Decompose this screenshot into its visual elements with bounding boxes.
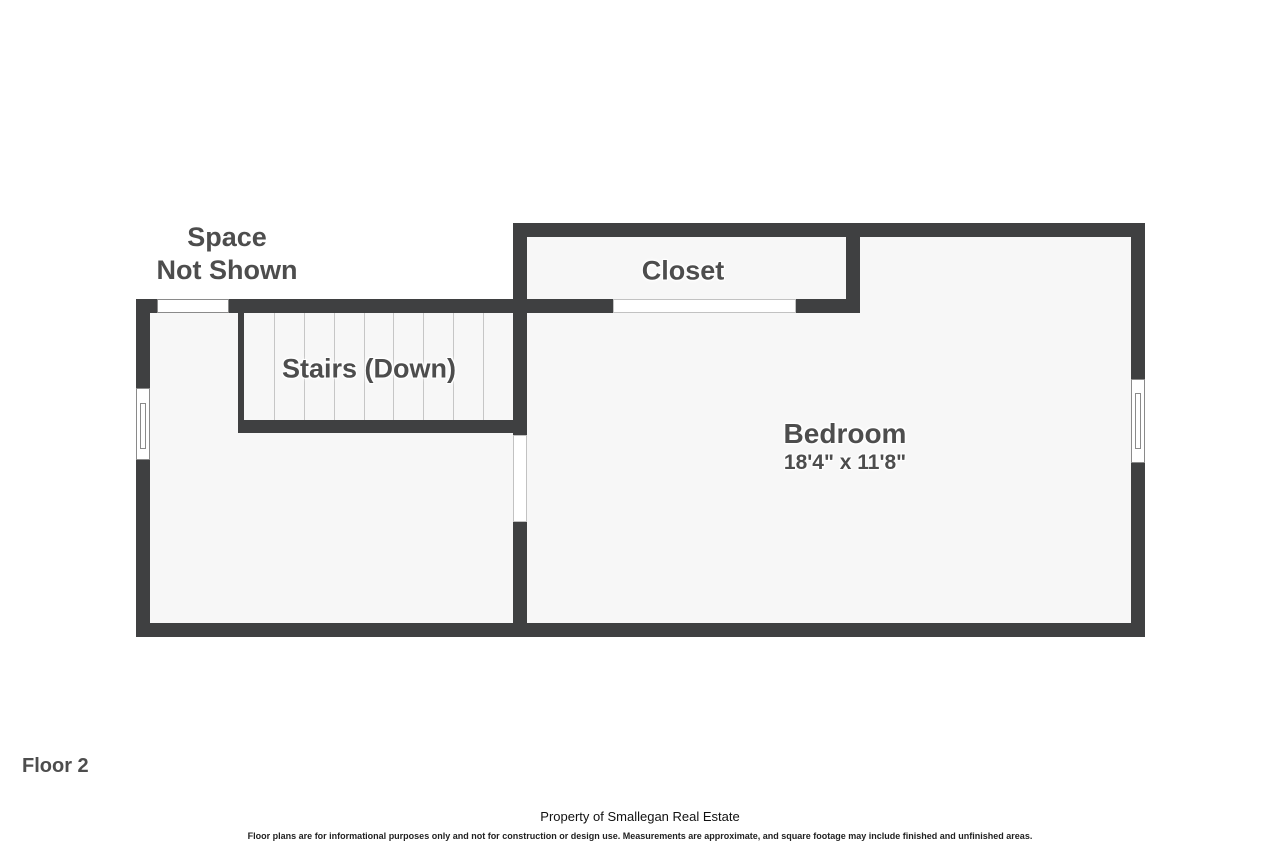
label-closet: Closet	[642, 255, 725, 288]
window-left-wall	[136, 388, 150, 460]
wall-middle-upper	[513, 223, 527, 435]
wall-left-exterior	[136, 299, 150, 637]
label-stairs-down: Stairs (Down)	[282, 353, 456, 386]
window-right-wall	[1131, 379, 1145, 463]
window-top-left-wall	[157, 299, 229, 313]
footer-disclaimer-text: Floor plans are for informational purpos…	[0, 831, 1280, 841]
wall-closet-right	[846, 223, 860, 310]
window-pane	[1135, 393, 1141, 449]
wall-middle-lower	[513, 522, 527, 637]
window-pane	[140, 403, 146, 449]
wall-stairs-left	[238, 313, 244, 433]
label-bedroom-name: Bedroom	[784, 417, 907, 451]
stair-tread-line	[274, 313, 275, 420]
bedroom-door-opening	[513, 435, 527, 522]
footer-property-text: Property of Smallegan Real Estate	[0, 809, 1280, 824]
closet-door-opening	[613, 299, 796, 313]
wall-bottom-exterior	[136, 623, 1145, 637]
floor-number-label: Floor 2	[22, 755, 89, 778]
stair-tread-line	[483, 313, 484, 420]
wall-stairs-bottom	[238, 420, 527, 433]
label-bedroom-dimensions: 18'4" x 11'8"	[784, 450, 906, 476]
label-space-not-shown: Space Not Shown	[157, 221, 298, 287]
wall-top-right-section	[513, 223, 1145, 237]
floorplan-page: Space Not Shown Closet Stairs (Down) Bed…	[0, 0, 1280, 853]
